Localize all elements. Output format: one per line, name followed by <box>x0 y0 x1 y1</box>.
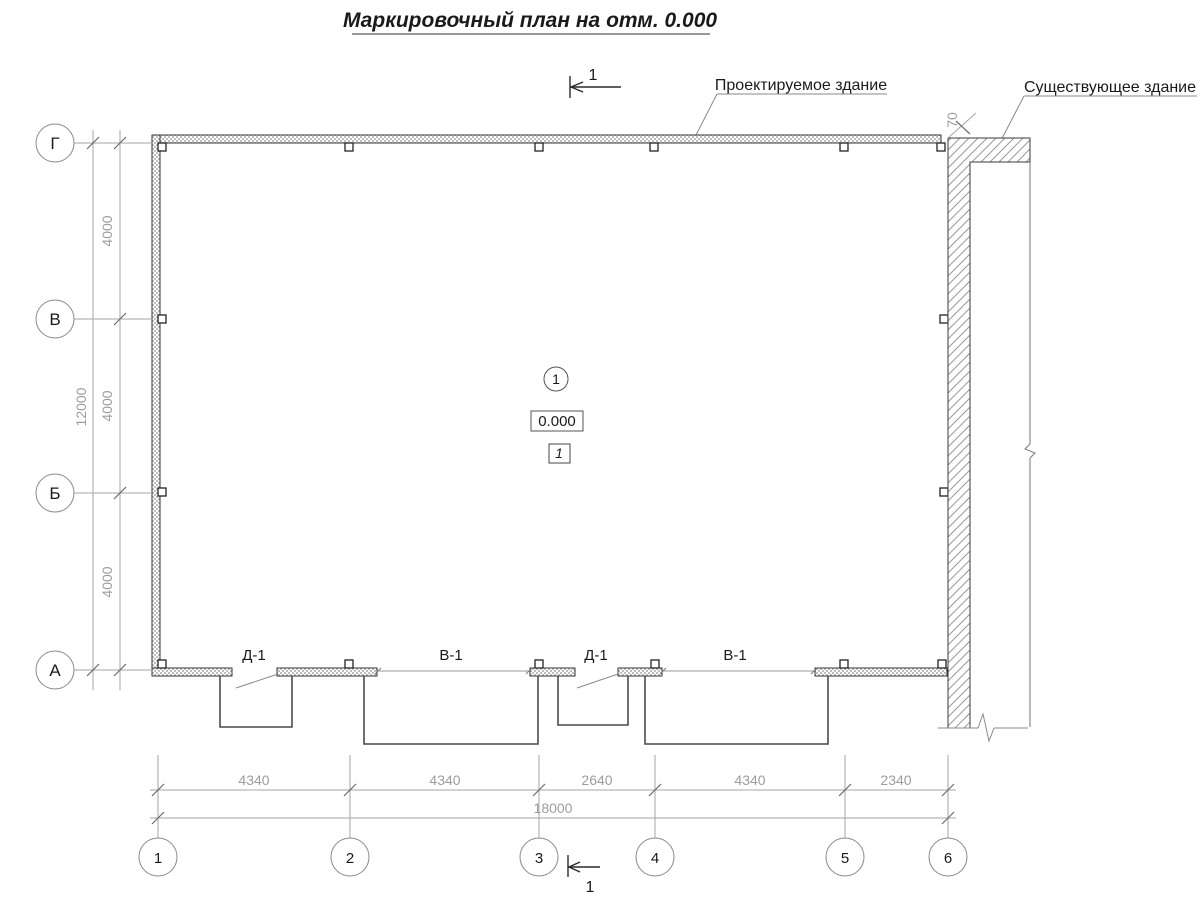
column-marker <box>158 315 166 323</box>
porch-outline <box>364 676 538 744</box>
door-mark: Д-1 <box>242 647 266 664</box>
column-marker <box>940 315 948 323</box>
dim-value: 2340 <box>880 772 911 788</box>
node-number: 1 <box>552 371 560 387</box>
dim-total: 18000 <box>534 800 573 816</box>
elevation-value: 0.000 <box>538 413 576 430</box>
column-marker <box>345 660 353 668</box>
dimension-wall-gap: 70 <box>944 112 976 138</box>
column-marker <box>158 660 166 668</box>
column-marker <box>937 143 945 151</box>
wall-bottom-segment <box>152 668 232 676</box>
dim-value: 4000 <box>99 566 115 597</box>
axis-label: В <box>49 310 60 329</box>
axis-label: 2 <box>346 850 354 867</box>
axis-label: 1 <box>154 850 162 867</box>
column-marker <box>840 660 848 668</box>
new-building-walls <box>152 135 947 676</box>
axis-label: Г <box>50 134 59 153</box>
wall-bottom-segment <box>530 668 575 676</box>
dimensions-left: 4000 4000 4000 12000 <box>73 130 126 690</box>
dim-value: 4340 <box>238 772 269 788</box>
porch-outline <box>645 676 828 744</box>
dim-value: 4000 <box>99 215 115 246</box>
floor-plan-canvas: Маркировочный план на отм. 0.000 1 1 Про… <box>0 0 1200 900</box>
axis-label: 6 <box>944 850 952 867</box>
section-mark-bottom: 1 <box>568 855 600 896</box>
column-marker <box>535 143 543 151</box>
door-swing-line <box>236 674 278 688</box>
room-number: 1 <box>555 445 563 461</box>
axis-label: 3 <box>535 850 543 867</box>
column-marker <box>535 660 543 668</box>
porch-outline <box>220 676 292 727</box>
column-marker <box>840 143 848 151</box>
wall-bottom-segment <box>815 668 947 676</box>
leader-line <box>695 94 717 137</box>
existing-wall-hatched <box>948 138 1030 728</box>
drawing-sheet: Маркировочный план на отм. 0.000 1 1 Про… <box>0 0 1200 900</box>
grid-axes-bottom: 1 2 3 4 5 6 <box>139 838 967 876</box>
wall-top <box>152 135 941 143</box>
dim-value: 4340 <box>734 772 765 788</box>
axis-label: Б <box>49 484 60 503</box>
column-marker <box>158 143 166 151</box>
column-markers <box>158 143 948 668</box>
opening-labels: Д-1 В-1 Д-1 В-1 <box>242 647 746 664</box>
column-marker <box>940 488 948 496</box>
dim-value: 2640 <box>581 772 612 788</box>
porches <box>220 676 828 744</box>
section-mark-top: 1 <box>570 67 621 98</box>
axis-label: 4 <box>651 850 659 867</box>
column-marker <box>651 660 659 668</box>
door-swing-line <box>577 674 618 688</box>
porch-outline <box>558 676 628 725</box>
column-marker <box>345 143 353 151</box>
gate-mark: В-1 <box>723 647 746 664</box>
existing-building <box>938 138 1035 741</box>
break-symbol-icon <box>978 714 994 741</box>
column-marker <box>938 660 946 668</box>
section-number: 1 <box>589 67 598 84</box>
title-block: Маркировочный план на отм. 0.000 <box>343 9 717 34</box>
break-symbol-icon <box>1025 444 1035 458</box>
dim-value: 70 <box>944 112 960 128</box>
wall-bottom-segment <box>618 668 662 676</box>
callout-designed-building: Проектируемое здание <box>695 77 887 137</box>
dim-value: 4000 <box>99 390 115 421</box>
column-marker <box>158 488 166 496</box>
gate-mark: В-1 <box>439 647 462 664</box>
dim-total: 12000 <box>73 387 89 426</box>
axis-label: 5 <box>841 850 849 867</box>
dim-value: 4340 <box>429 772 460 788</box>
callout-label: Проектируемое здание <box>715 77 887 94</box>
wall-left <box>152 135 160 676</box>
section-number: 1 <box>586 879 595 896</box>
door-mark: Д-1 <box>584 647 608 664</box>
axis-label: А <box>49 661 61 680</box>
callout-label: Существующее здание <box>1024 79 1196 96</box>
grid-axes-left: Г В Б А <box>36 124 152 689</box>
column-marker <box>650 143 658 151</box>
page-title: Маркировочный план на отм. 0.000 <box>343 9 717 32</box>
center-marks: 1 0.000 1 <box>531 367 583 463</box>
wall-bottom-segment <box>277 668 377 676</box>
dimensions-bottom: 4340 4340 2640 4340 2340 18000 <box>150 755 956 838</box>
